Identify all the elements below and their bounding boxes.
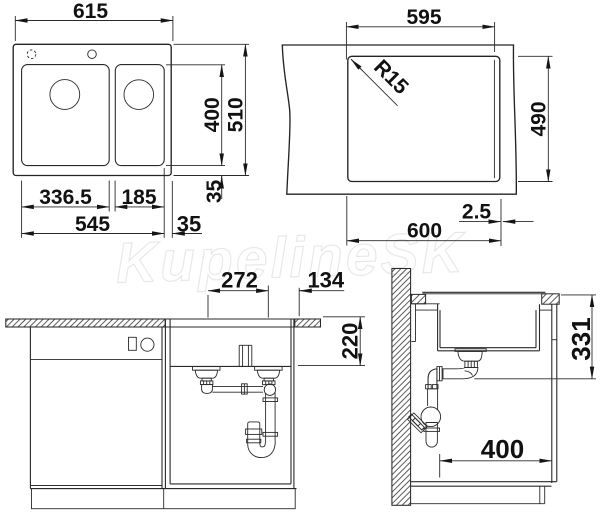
svg-text:336.5: 336.5 xyxy=(39,186,92,209)
svg-text:2.5: 2.5 xyxy=(462,200,492,223)
svg-text:35: 35 xyxy=(203,180,226,204)
svg-text:272: 272 xyxy=(221,268,258,293)
svg-text:545: 545 xyxy=(75,213,110,236)
svg-text:331: 331 xyxy=(566,317,596,360)
svg-text:134: 134 xyxy=(307,267,344,292)
svg-text:615: 615 xyxy=(73,0,108,23)
svg-text:400: 400 xyxy=(201,97,224,132)
svg-text:400: 400 xyxy=(481,434,524,464)
svg-text:490: 490 xyxy=(528,101,551,136)
svg-text:220: 220 xyxy=(337,323,362,360)
svg-text:35: 35 xyxy=(177,212,201,237)
svg-text:595: 595 xyxy=(406,6,441,29)
svg-text:510: 510 xyxy=(225,97,248,132)
svg-text:185: 185 xyxy=(121,186,156,209)
svg-text:600: 600 xyxy=(407,220,442,243)
